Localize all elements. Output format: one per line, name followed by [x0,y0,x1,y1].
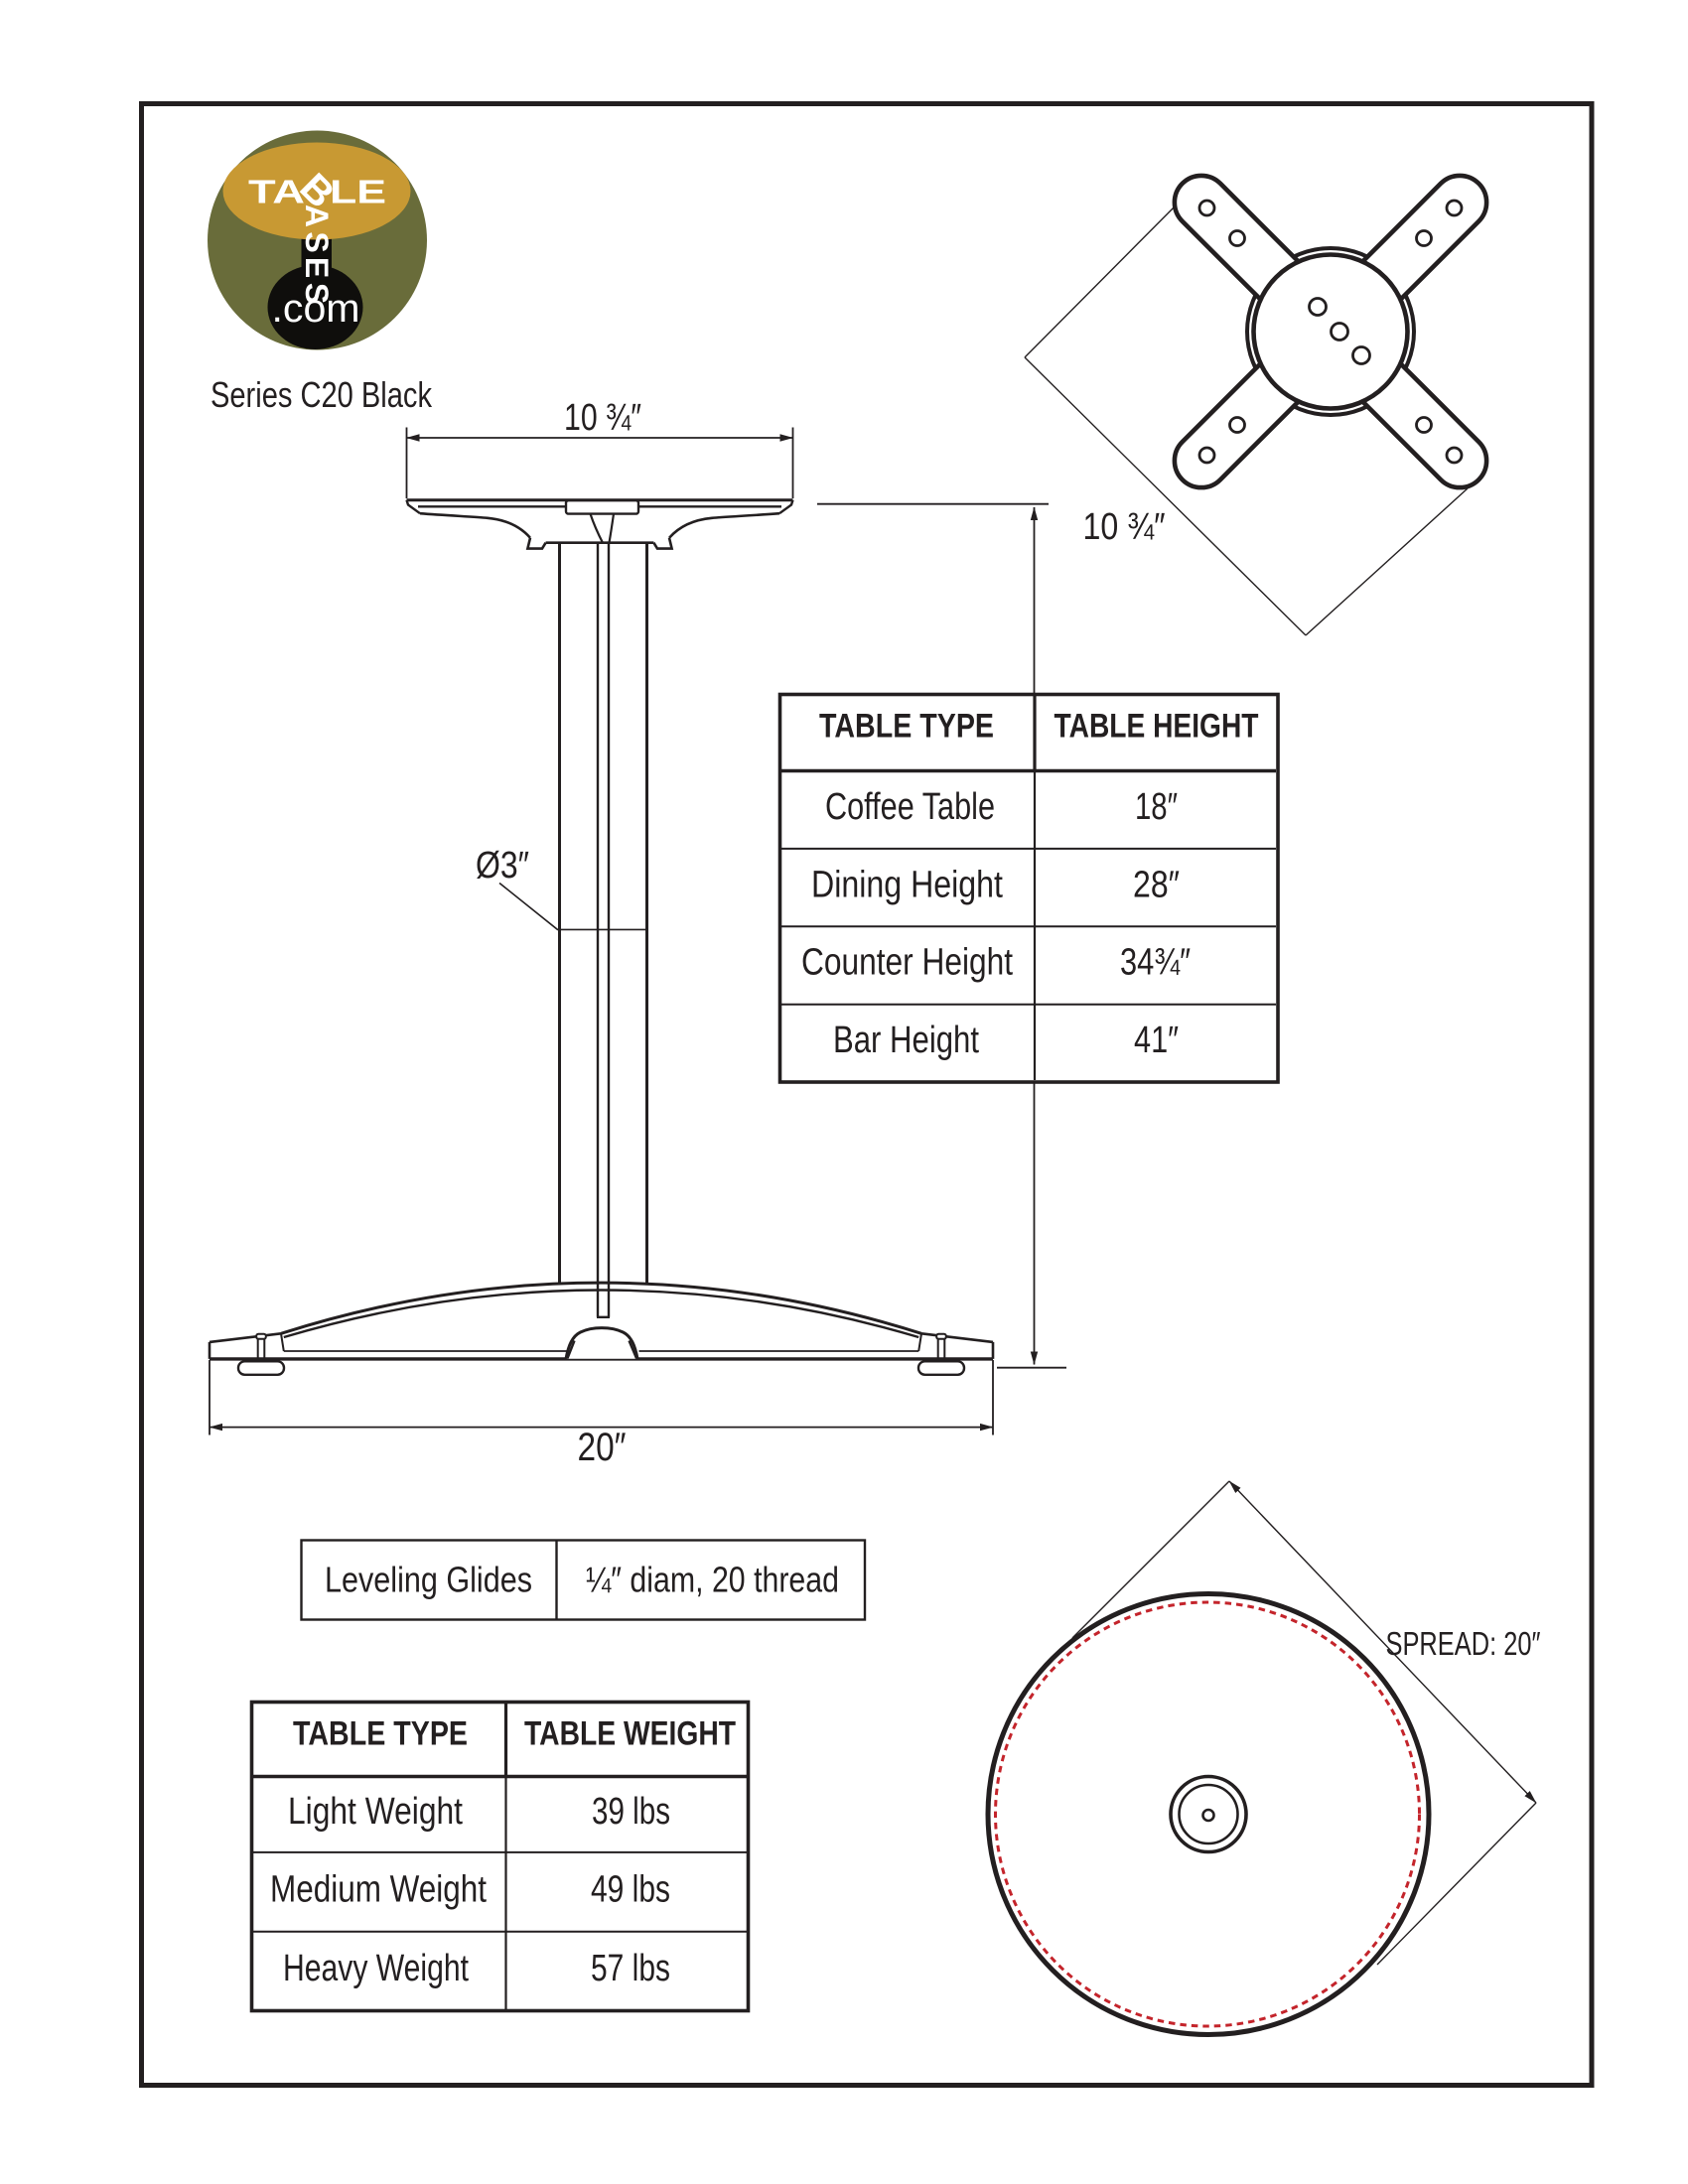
svg-text:18″: 18″ [1135,786,1178,828]
svg-text:10 ¾″: 10 ¾″ [1083,506,1166,548]
svg-text:Dining Height: Dining Height [811,865,1003,906]
svg-text:S: S [299,231,335,252]
svg-text:Heavy Weight: Heavy Weight [283,1948,469,1989]
svg-text:TABLE TYPE: TABLE TYPE [293,1715,468,1753]
svg-text:57 lbs: 57 lbs [591,1948,670,1989]
svg-text:E: E [299,257,335,278]
svg-text:Series C20 Black: Series C20 Black [211,374,433,415]
svg-text:34¾″: 34¾″ [1120,942,1191,984]
svg-text:39 lbs: 39 lbs [592,1791,670,1833]
svg-text:.com: .com [272,287,360,331]
svg-text:41″: 41″ [1134,1020,1179,1061]
svg-text:SPREAD: 20″: SPREAD: 20″ [1386,1625,1541,1662]
svg-text:49 lbs: 49 lbs [591,1869,670,1911]
svg-text:LE: LE [330,174,386,210]
svg-text:TABLE TYPE: TABLE TYPE [819,708,994,746]
svg-text:Coffee Table: Coffee Table [825,786,995,828]
svg-text:Bar Height: Bar Height [833,1020,979,1061]
svg-text:Ø3″: Ø3″ [476,845,529,887]
svg-text:A: A [299,205,335,227]
svg-text:¼″ diam, 20 thread: ¼″ diam, 20 thread [586,1560,839,1600]
svg-text:Counter Height: Counter Height [801,942,1013,984]
svg-text:TABLE HEIGHT: TABLE HEIGHT [1055,708,1259,746]
svg-text:Light Weight: Light Weight [288,1791,463,1833]
svg-text:28″: 28″ [1133,865,1180,906]
svg-text:Leveling Glides: Leveling Glides [325,1560,532,1600]
svg-text:20″: 20″ [578,1426,627,1469]
svg-text:Medium Weight: Medium Weight [270,1869,487,1911]
svg-text:TABLE WEIGHT: TABLE WEIGHT [524,1715,736,1753]
svg-text:10 ¾″: 10 ¾″ [564,397,641,439]
